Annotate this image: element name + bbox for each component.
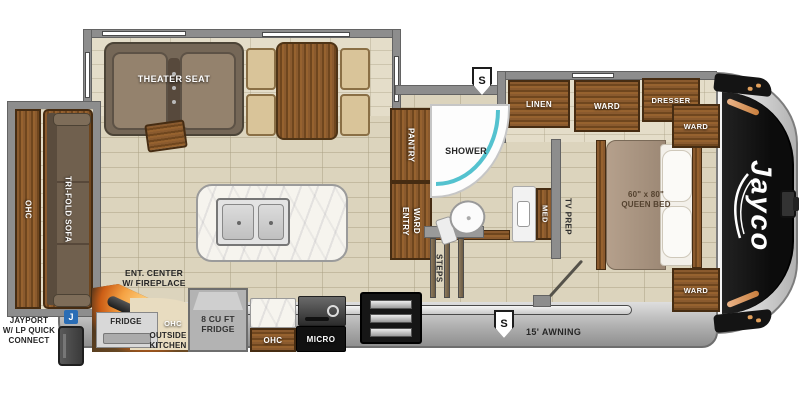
entry-ward-label-1: ENTRY: [401, 207, 410, 236]
theater-seat-label: THEATER SEAT: [138, 75, 210, 84]
tri-fold-sofa: TRI-FOLD SOFA: [43, 109, 93, 309]
rear-slideout: OHC TRI-FOLD SOFA: [8, 102, 100, 316]
wardrobe-bed-bottom-label: WARD: [684, 286, 709, 295]
bed-size-label: 60" x 80": [600, 190, 692, 200]
window: [102, 31, 186, 36]
step-rail: [458, 238, 464, 298]
bed-headboard: [692, 142, 702, 268]
dinette-chair: [340, 94, 370, 136]
theater-seat-left-cushion: [112, 52, 168, 130]
ent-center-label-2: W/ FIREPLACE: [108, 278, 200, 288]
window: [394, 56, 399, 102]
side-table: [144, 119, 188, 152]
door-stub-wall: [534, 296, 550, 306]
jayport-connector: [58, 326, 84, 366]
fridge-8cuft-label-1: 8 CU FT: [190, 314, 246, 324]
rear-ohc-cabinet: OHC: [15, 109, 41, 309]
ent-center-label-1: ENT. CENTER: [108, 268, 200, 278]
hitch-pin-tip: [793, 197, 799, 211]
tri-fold-sofa-label: TRI-FOLD SOFA: [64, 176, 73, 243]
eagle-graphic: [726, 168, 756, 244]
range-cooktop: [298, 296, 346, 326]
tv-prep-wall: [552, 140, 560, 258]
wardrobe-bed-top-label: WARD: [684, 122, 709, 131]
theater-seat-right-cushion: [180, 52, 236, 130]
rv-floorplan: S LINEN WARD DRESSER OHC TRI-FOLD SOFA: [0, 0, 800, 400]
entry-wardrobe: ENTRY WARD: [390, 182, 432, 260]
ent-center-label: ENT. CENTER W/ FIREPLACE: [108, 268, 200, 288]
dinette-chair: [340, 48, 370, 90]
tv-prep-label: TV PREP: [564, 198, 573, 235]
kitchen-ohc: OHC: [250, 328, 296, 352]
pillow: [662, 206, 692, 258]
window: [572, 73, 614, 78]
queen-bed-label: 60" x 80" QUEEN BED: [600, 190, 692, 210]
kitchen-ohc-label: OHC: [264, 336, 283, 345]
kitchen-counter: [250, 298, 296, 328]
wardrobe-bed-bottom: WARD: [672, 268, 720, 312]
sink-basin: [222, 204, 254, 240]
awning-label: 15' AWNING: [526, 327, 581, 337]
entry-ward-label-2: WARD: [412, 208, 421, 234]
linen-label: LINEN: [526, 100, 552, 109]
steps-label: STEPS: [435, 254, 444, 283]
wardrobe-bed-top: WARD: [672, 104, 720, 148]
theater-seat-console: [168, 58, 180, 124]
outside-ohc-label: OHC: [164, 319, 182, 328]
dinette-table: [276, 42, 338, 140]
jayport-label-2: W/ LP QUICK: [0, 326, 58, 336]
jayport-label: JAYPORT W/ LP QUICK CONNECT: [0, 316, 58, 346]
bed-type-label: QUEEN BED: [600, 200, 692, 210]
jayport-badge: J: [64, 310, 78, 324]
fridge-8cuft: 8 CU FT FRIDGE: [188, 288, 248, 352]
entry-steps: [360, 292, 422, 344]
double-sink: [216, 198, 290, 246]
kitchen-island: [196, 184, 348, 262]
fridge-8cuft-label-2: FRIDGE: [190, 324, 246, 334]
window: [85, 52, 90, 98]
outside-fridge-label: FRIDGE: [110, 317, 141, 327]
sink-basin: [258, 204, 284, 240]
pantry-label: PANTRY: [407, 128, 416, 162]
linen-cabinet: LINEN: [508, 80, 570, 128]
dinette-chair: [246, 48, 276, 90]
vanity-sink: [512, 186, 536, 242]
wardrobe-slide: WARD: [574, 80, 640, 132]
microwave: MICRO: [296, 326, 346, 352]
jayport-label-3: CONNECT: [0, 336, 58, 346]
jayport-label-1: JAYPORT: [0, 316, 58, 326]
microwave-label: MICRO: [307, 335, 336, 344]
rear-ohc-label: OHC: [24, 200, 33, 219]
dinette-chair: [246, 94, 276, 136]
jayport-badge-letter: J: [68, 312, 73, 322]
shower-label: SHOWER: [445, 146, 487, 156]
wardrobe-slide-label: WARD: [594, 102, 620, 111]
window: [262, 32, 350, 37]
pantry-cabinet: PANTRY: [390, 108, 432, 182]
med-label: MED: [541, 205, 550, 223]
